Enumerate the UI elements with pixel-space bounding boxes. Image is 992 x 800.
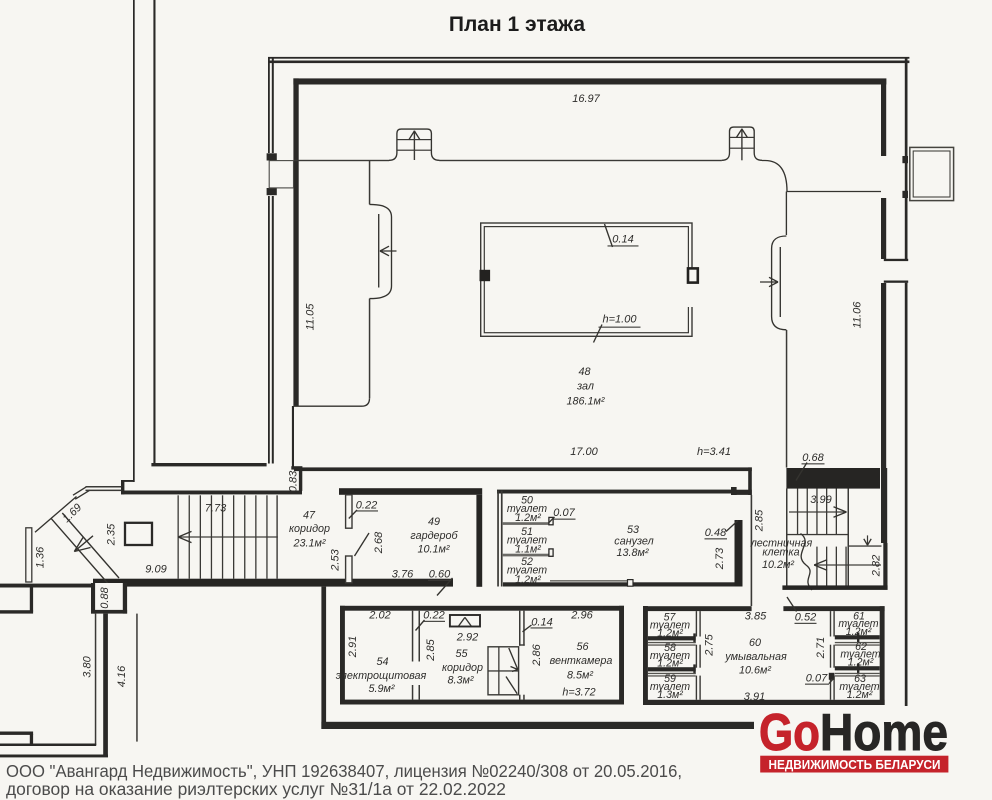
svg-text:2.85: 2.85 — [754, 509, 766, 532]
svg-text:1.2м²: 1.2м² — [847, 689, 873, 701]
svg-text:49: 49 — [428, 516, 440, 528]
svg-text:9.09: 9.09 — [145, 564, 166, 576]
svg-text:1.2м²: 1.2м² — [515, 574, 541, 586]
svg-text:10.2м²: 10.2м² — [762, 559, 794, 571]
svg-text:2.85: 2.85 — [425, 638, 437, 661]
svg-text:3.76: 3.76 — [392, 569, 414, 581]
svg-text:1.2м²: 1.2м² — [657, 658, 683, 670]
svg-text:0.14: 0.14 — [531, 617, 552, 629]
svg-text:санузел: санузел — [614, 536, 653, 548]
svg-text:3.99: 3.99 — [810, 494, 831, 506]
svg-text:56: 56 — [576, 641, 588, 653]
svg-text:0.68: 0.68 — [802, 452, 824, 464]
svg-text:Go: Go — [759, 704, 820, 762]
svg-text:коридор: коридор — [289, 523, 330, 535]
svg-text:0.48: 0.48 — [705, 527, 727, 539]
svg-text:h=3.41: h=3.41 — [697, 446, 731, 458]
svg-text:План 1 этажа: План 1 этажа — [449, 13, 586, 36]
svg-text:23.1м²: 23.1м² — [292, 538, 325, 550]
svg-text:60: 60 — [749, 637, 761, 649]
svg-text:0.83: 0.83 — [287, 470, 299, 492]
svg-text:7.73: 7.73 — [205, 503, 227, 515]
svg-text:2.75: 2.75 — [704, 633, 716, 656]
svg-text:венткамера: венткамера — [550, 655, 613, 667]
svg-text:0.22: 0.22 — [423, 610, 444, 622]
svg-text:11.05: 11.05 — [305, 303, 317, 331]
svg-text:13.8м²: 13.8м² — [616, 547, 648, 559]
svg-text:2.86: 2.86 — [531, 643, 543, 666]
svg-text:Home: Home — [820, 704, 948, 762]
svg-text:коридор: коридор — [442, 662, 483, 674]
svg-text:1.2м²: 1.2м² — [657, 628, 683, 640]
svg-text:4.16: 4.16 — [116, 665, 128, 687]
svg-text:1.2м²: 1.2м² — [848, 657, 874, 669]
svg-text:54: 54 — [376, 656, 388, 668]
svg-text:2.82: 2.82 — [871, 555, 883, 577]
svg-text:1.36: 1.36 — [35, 546, 47, 568]
svg-text:10.1м²: 10.1м² — [417, 544, 449, 556]
svg-text:3.80: 3.80 — [82, 655, 94, 677]
svg-text:3.85: 3.85 — [745, 611, 767, 623]
svg-text:11.06: 11.06 — [852, 301, 864, 329]
svg-text:2.35: 2.35 — [106, 523, 118, 546]
svg-text:8.3м²: 8.3м² — [447, 675, 473, 687]
svg-text:10.6м²: 10.6м² — [739, 665, 771, 677]
svg-text:2.71: 2.71 — [815, 637, 827, 659]
svg-text:ООО "Авангард Недвижимость", У: ООО "Авангард Недвижимость", УНП 1926384… — [6, 761, 682, 781]
svg-text:2.73: 2.73 — [714, 547, 726, 570]
svg-text:гардероб: гардероб — [410, 530, 458, 542]
svg-text:1.3м²: 1.3м² — [657, 689, 683, 701]
svg-text:48: 48 — [578, 366, 590, 378]
svg-text:электрощитовая: электрощитовая — [336, 670, 427, 682]
svg-text:умывальная: умывальная — [724, 651, 787, 663]
svg-text:зал: зал — [576, 381, 594, 393]
svg-text:47: 47 — [303, 510, 316, 522]
svg-text:h=1.00: h=1.00 — [603, 314, 638, 326]
svg-text:17.00: 17.00 — [570, 446, 598, 458]
svg-text:2.53: 2.53 — [330, 548, 342, 571]
svg-text:0.14: 0.14 — [612, 234, 633, 246]
svg-text:2.96: 2.96 — [570, 610, 593, 622]
svg-text:8.5м²: 8.5м² — [567, 670, 593, 682]
svg-text:1.1м²: 1.1м² — [515, 544, 541, 556]
svg-text:0.60: 0.60 — [429, 569, 451, 581]
svg-text:2.91: 2.91 — [347, 636, 359, 658]
svg-text:3.91: 3.91 — [744, 691, 765, 703]
svg-text:договор на оказание риэлтерски: договор на оказание риэлтерских услуг №3… — [6, 779, 506, 799]
svg-text:0.52: 0.52 — [795, 612, 816, 624]
svg-text:2.92: 2.92 — [456, 632, 478, 644]
svg-text:h=3.72: h=3.72 — [562, 687, 595, 699]
svg-text:НЕДВИЖИМОСТЬ БЕЛАРУСИ: НЕДВИЖИМОСТЬ БЕЛАРУСИ — [769, 758, 941, 772]
svg-text:0.88: 0.88 — [99, 586, 111, 608]
svg-text:5.9м²: 5.9м² — [368, 683, 394, 695]
svg-text:1.2м²: 1.2м² — [515, 512, 541, 524]
svg-text:0.07: 0.07 — [806, 673, 828, 685]
svg-text:2.68: 2.68 — [373, 531, 385, 554]
svg-text:186.1м²: 186.1м² — [566, 396, 604, 408]
svg-text:2.02: 2.02 — [368, 610, 390, 622]
svg-text:0.22: 0.22 — [356, 500, 377, 512]
svg-text:1.2м²: 1.2м² — [846, 626, 872, 638]
svg-text:0.07: 0.07 — [553, 507, 575, 519]
svg-text:55: 55 — [455, 648, 468, 660]
svg-text:клетка: клетка — [762, 547, 799, 559]
svg-text:16.97: 16.97 — [572, 93, 600, 105]
svg-text:53: 53 — [627, 524, 639, 536]
